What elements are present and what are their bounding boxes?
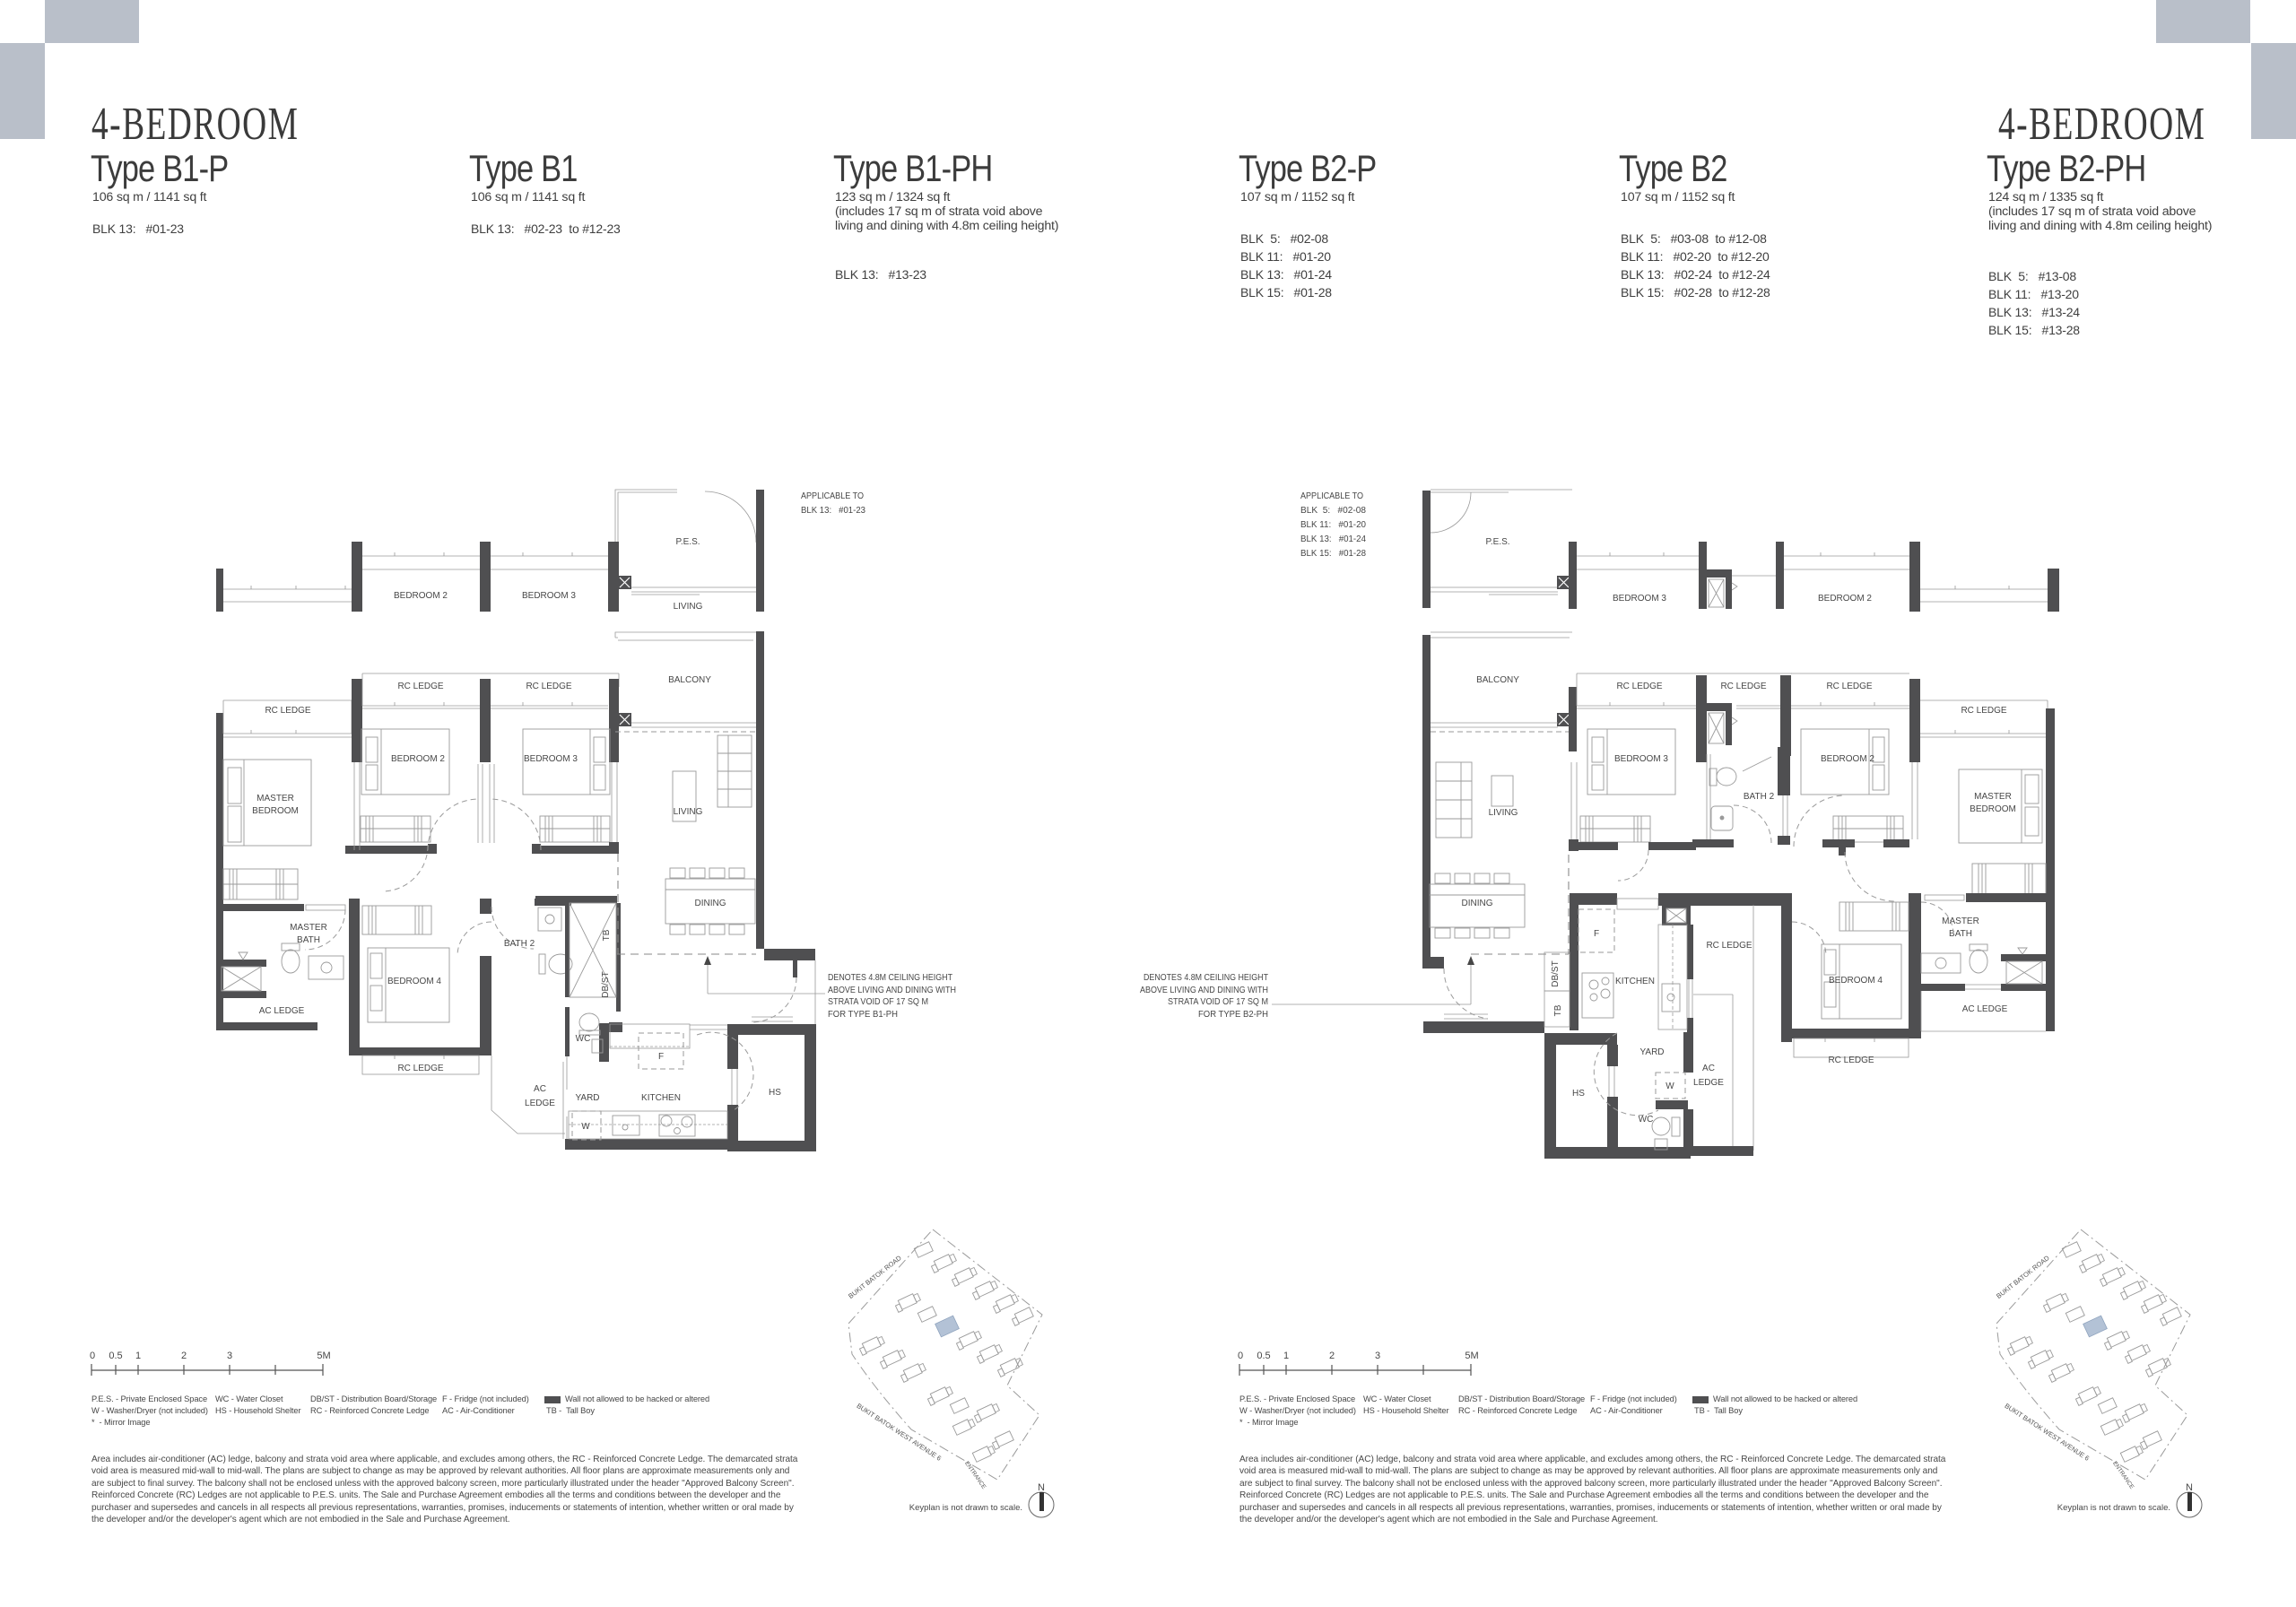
svg-text:BLK 13: #01-23: BLK 13: #01-23 [801, 506, 865, 516]
svg-text:BLK 13: #01-24: BLK 13: #01-24 [1300, 534, 1366, 544]
svg-text:LEDGE: LEDGE [1693, 1078, 1724, 1088]
svg-text:KITCHEN: KITCHEN [1615, 977, 1655, 986]
svg-text:RC LEDGE: RC LEDGE [526, 682, 571, 691]
svg-text:5M: 5M [317, 1351, 330, 1361]
svg-text:BEDROOM 2: BEDROOM 2 [1818, 594, 1872, 604]
svg-text:MASTER: MASTER [1974, 792, 2012, 802]
svg-text:RC LEDGE: RC LEDGE [1961, 706, 2006, 716]
svg-text:MASTER: MASTER [1942, 916, 1979, 926]
svg-text:LIVING: LIVING [1489, 808, 1518, 818]
svg-text:BEDROOM 2: BEDROOM 2 [1821, 754, 1874, 764]
svg-text:YARD: YARD [575, 1093, 599, 1103]
svg-text:RC LEDGE: RC LEDGE [1706, 941, 1752, 951]
svg-text:DINING: DINING [1462, 899, 1493, 908]
svg-text:BEDROOM 4: BEDROOM 4 [387, 977, 441, 986]
svg-text:AC LEDGE: AC LEDGE [1962, 1004, 2008, 1014]
svg-text:BLK 11: #01-20: BLK 11: #01-20 [1300, 520, 1366, 530]
svg-text:BEDROOM 2: BEDROOM 2 [394, 591, 448, 601]
svg-text:0.5: 0.5 [109, 1351, 122, 1361]
svg-text:DB/ST: DB/ST [601, 971, 611, 997]
svg-text:BEDROOM 4: BEDROOM 4 [1829, 976, 1883, 986]
svg-text:W: W [1665, 1081, 1674, 1091]
svg-text:STRATA VOID OF 17 SQ M: STRATA VOID OF 17 SQ M [828, 997, 928, 1007]
svg-text:Keyplan is not drawn to scale.: Keyplan is not drawn to scale. [909, 1503, 1022, 1513]
svg-text:BEDROOM 3: BEDROOM 3 [1614, 754, 1668, 764]
svg-text:MASTER: MASTER [290, 923, 327, 933]
svg-text:TB: TB [1553, 1004, 1563, 1016]
svg-text:BLK 15: #01-28: BLK 15: #01-28 [1300, 549, 1366, 559]
svg-text:1: 1 [135, 1351, 141, 1361]
svg-text:KITCHEN: KITCHEN [641, 1093, 681, 1103]
svg-text:RC LEDGE: RC LEDGE [397, 682, 443, 691]
svg-text:AC: AC [1702, 1064, 1715, 1073]
svg-text:WC: WC [576, 1034, 591, 1044]
svg-text:BALCONY: BALCONY [668, 675, 711, 685]
svg-text:BEDROOM 3: BEDROOM 3 [1613, 594, 1666, 604]
svg-text:2: 2 [181, 1351, 187, 1361]
svg-text:BUKIT BATOK WEST AVENUE 6: BUKIT BATOK WEST AVENUE 6 [856, 1402, 944, 1463]
svg-text:F: F [1594, 929, 1599, 939]
svg-text:BLK 5: #02-08: BLK 5: #02-08 [1300, 506, 1366, 516]
svg-text:BEDROOM 2: BEDROOM 2 [391, 754, 445, 764]
svg-text:BATH: BATH [297, 935, 320, 945]
svg-text:YARD: YARD [1639, 1047, 1664, 1057]
svg-text:BEDROOM 3: BEDROOM 3 [524, 754, 578, 764]
svg-text:LIVING: LIVING [674, 602, 703, 612]
svg-text:3: 3 [227, 1351, 232, 1361]
svg-text:FOR TYPE B2-PH: FOR TYPE B2-PH [1198, 1010, 1268, 1020]
svg-text:RC LEDGE: RC LEDGE [1828, 1055, 1874, 1065]
svg-text:AC LEDGE: AC LEDGE [259, 1006, 305, 1016]
svg-text:F: F [658, 1052, 664, 1062]
svg-text:TB: TB [602, 929, 612, 941]
svg-text:RC LEDGE: RC LEDGE [265, 706, 310, 716]
svg-text:BEDROOM: BEDROOM [252, 806, 299, 816]
svg-text:DENOTES 4.8M CEILING HEIGHT: DENOTES 4.8M CEILING HEIGHT [828, 973, 952, 983]
svg-text:DINING: DINING [695, 899, 726, 908]
svg-text:AC: AC [534, 1084, 546, 1094]
svg-text:BUKIT BATOK ROAD: BUKIT BATOK ROAD [847, 1254, 903, 1300]
svg-text:APPLICABLE TO: APPLICABLE TO [801, 491, 864, 501]
svg-text:BEDROOM: BEDROOM [1970, 804, 2016, 814]
svg-text:DB/ST: DB/ST [1551, 960, 1561, 986]
svg-text:W: W [581, 1122, 590, 1132]
svg-text:ABOVE LIVING AND DINING WITH: ABOVE LIVING AND DINING WITH [828, 986, 956, 995]
svg-text:BATH 2: BATH 2 [1744, 792, 1775, 802]
svg-text:MASTER: MASTER [257, 794, 294, 803]
svg-text:HS: HS [1572, 1089, 1585, 1099]
svg-text:STRATA VOID OF 17 SQ M: STRATA VOID OF 17 SQ M [1168, 997, 1268, 1007]
svg-text:RC LEDGE: RC LEDGE [1616, 682, 1662, 691]
svg-text:FOR TYPE B1-PH: FOR TYPE B1-PH [828, 1010, 898, 1020]
svg-text:RC LEDGE: RC LEDGE [397, 1064, 443, 1073]
svg-text:LEDGE: LEDGE [525, 1099, 555, 1108]
svg-text:0: 0 [90, 1351, 95, 1361]
svg-text:RC LEDGE: RC LEDGE [1826, 682, 1872, 691]
svg-text:BEDROOM 3: BEDROOM 3 [522, 591, 576, 601]
svg-text:P.E.S.: P.E.S. [1485, 537, 1509, 547]
svg-text:ENTRANCE: ENTRANCE [963, 1460, 987, 1490]
svg-text:WC: WC [1639, 1115, 1654, 1125]
svg-text:LIVING: LIVING [674, 807, 703, 817]
svg-text:N: N [1038, 1482, 1045, 1493]
svg-text:DENOTES 4.8M CEILING HEIGHT: DENOTES 4.8M CEILING HEIGHT [1144, 973, 1268, 983]
svg-text:BATH: BATH [1949, 929, 1972, 939]
svg-text:HS: HS [769, 1088, 781, 1098]
svg-text:RC LEDGE: RC LEDGE [1720, 682, 1766, 691]
svg-text:ABOVE LIVING AND DINING WITH: ABOVE LIVING AND DINING WITH [1140, 986, 1268, 995]
svg-text:BATH 2: BATH 2 [504, 939, 535, 949]
svg-text:BALCONY: BALCONY [1476, 675, 1519, 685]
svg-text:P.E.S.: P.E.S. [675, 537, 700, 547]
svg-text:APPLICABLE TO: APPLICABLE TO [1300, 491, 1363, 501]
